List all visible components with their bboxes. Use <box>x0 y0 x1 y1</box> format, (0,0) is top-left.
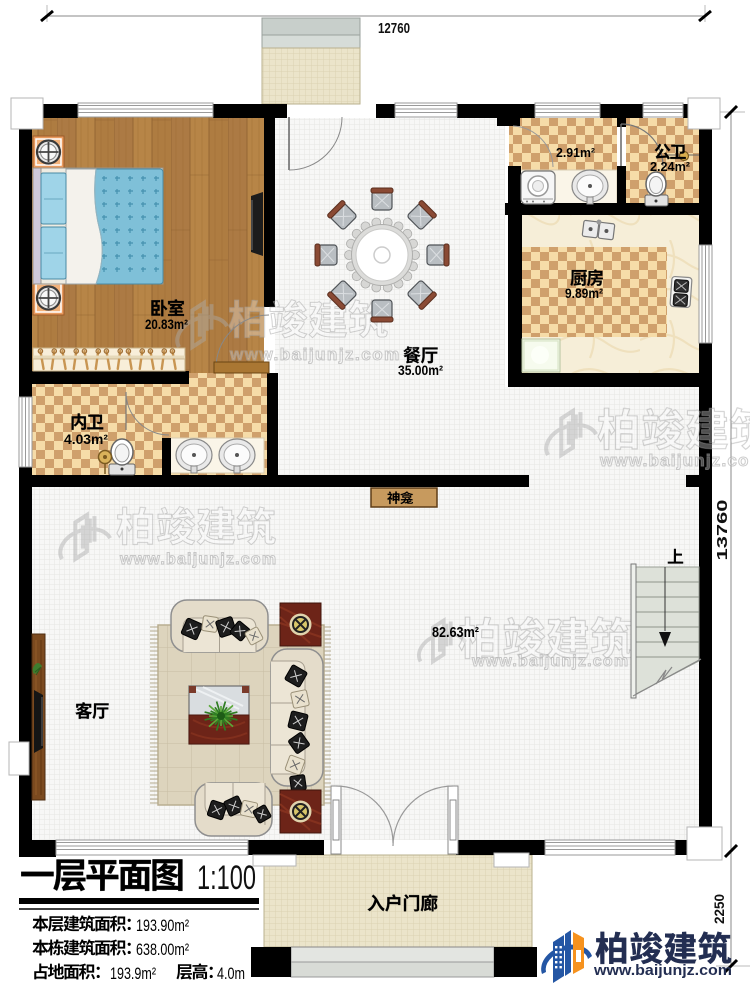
svg-text:www.baijunjz.com: www.baijunjz.com <box>471 653 629 670</box>
svg-text:35.00m²: 35.00m² <box>398 362 443 378</box>
svg-text:12760: 12760 <box>378 20 410 37</box>
svg-text:638.00m²: 638.00m² <box>136 941 189 959</box>
svg-text:www.baijunjz.com: www.baijunjz.com <box>229 345 401 364</box>
svg-text:www.baijunjz.com: www.baijunjz.com <box>119 551 277 568</box>
svg-text:www.baijunjz.com: www.baijunjz.com <box>599 451 750 470</box>
svg-text:2250: 2250 <box>711 894 727 924</box>
svg-text:82.63m²: 82.63m² <box>432 625 479 641</box>
svg-text:13760: 13760 <box>714 500 731 561</box>
svg-text:1:100: 1:100 <box>197 859 256 897</box>
svg-text:193.9m²: 193.9m² <box>110 965 156 983</box>
svg-text:9.89m²: 9.89m² <box>565 286 603 301</box>
svg-text:193.90m²: 193.90m² <box>136 917 189 935</box>
svg-text:4.0m: 4.0m <box>217 965 245 983</box>
svg-text:2.24m²: 2.24m² <box>650 159 691 174</box>
svg-text:4.03m²: 4.03m² <box>64 432 109 447</box>
svg-text:2.91m²: 2.91m² <box>556 145 596 160</box>
svg-text:www.baijunjz.com: www.baijunjz.com <box>593 963 732 979</box>
svg-text:20.83m²: 20.83m² <box>145 316 188 332</box>
